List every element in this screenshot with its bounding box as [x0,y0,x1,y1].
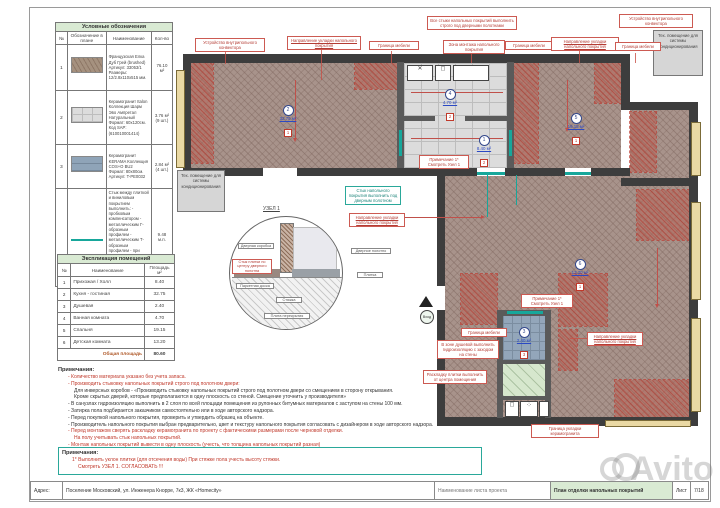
legend-col-no: № [56,32,68,45]
callout-tile-layout: Раскладку плитки выполнить от центра пом… [423,370,487,384]
stove-icon: ⁘ [520,401,538,417]
notes2-block: Примечания: 1* Выполнить уклон плитки (д… [58,447,482,475]
wall-segment [503,396,545,400]
wall-segment [437,168,477,176]
explication-col-no: № [58,264,71,277]
lay-direction-line [657,248,658,304]
callout-seams-under-doors: Все стыки напольных покрытий выполнить с… [427,16,517,30]
callout-convector: Устройство внутрипольного конвектора [195,38,265,52]
tile-layer [292,269,340,277]
legend-col-symbol: Обозначение в плане [67,32,106,45]
tech-room-right: Тех. помещение для системы кондициониров… [653,30,703,76]
explication-total-label: Общая площадь [58,349,145,361]
floor-seam-line [509,130,512,156]
wall-segment [297,168,437,176]
explication-row: 1Прихожая / Холл8.40 [58,277,175,289]
legend-title: Условные обозначения [56,23,173,32]
window [691,202,701,300]
kitchen-sink-icon: ◻ [505,401,519,417]
appliance-icon [539,401,549,417]
room-badge-hall: 1 8.40 м² 2 [471,128,497,169]
tech-room-left: Тех. помещение для системы кондициониров… [177,170,225,212]
wall-segment [465,116,507,121]
notes2-title: Примечания: [62,450,478,456]
callout-lay-direction: Направление укладки напольного покрытия [349,213,405,227]
callout-leader [570,338,587,339]
furniture-zone [514,63,538,163]
detail-circle-uzel1: Дверная коробка Стык плитки по центру дв… [229,216,343,330]
floor-seam-line [399,130,402,156]
callout-furniture-border: Граница мебели [505,41,553,50]
wall-segment [437,176,445,286]
door-leaf-section [293,227,337,271]
seam-leader-line [487,175,488,217]
finish-ref: 1 [572,137,580,145]
explication-total-row: Общая площадь 80.60 [58,349,175,361]
legend-row-tile: 2 Керамогранит Italon Коллекция Шарм Эво… [56,91,173,145]
note-line: На полу учитывать стык напольных покрыти… [58,435,478,442]
wall-segment [404,116,435,121]
callout-lay-direction: Направление укладки напольного покрытия [587,332,643,346]
washing-machine-icon: ✕ [407,65,433,81]
window [176,70,185,168]
avito-logo-icon [600,453,634,487]
room-area: 8.40 м² [471,146,497,151]
window [691,318,701,412]
room-number: 1 [479,135,490,146]
finish-ref: 2 [446,113,454,121]
notes2-line2: Смотреть УЗЕЛ 1. СОГЛАСОВАТЬ !!! [62,464,478,471]
callout-lay-direction: Направление укладки напольного покрытия [551,37,619,51]
room-area: 19.15 м² [563,124,589,129]
legend-col-name: Наименование [106,32,151,45]
explication-row: 5Спальня19.15 [58,325,175,337]
lay-direction-arrow [481,215,485,219]
floor-seam-line [507,311,543,314]
legend-row-blue-tile: 3 Керамогранит KERAMA Коллекция COS+O BU… [56,145,173,189]
furniture-zone [630,112,656,172]
wall-segment [621,178,698,186]
detail-label-joint: Стык плитки по центру дверного полотна [232,259,272,274]
furniture-zone [637,190,689,240]
detail-label-door-leaf: Дверное полотно [351,248,391,254]
room-badge-kids-room: 6 13.20 м² 1 [567,252,593,293]
callout-mount-zone: Зона монтажа напольного покрытия [443,40,505,54]
wall-segment [437,310,445,420]
lay-direction-arrow [655,304,659,308]
address-label: Адрес: [31,482,63,499]
watermark-text: Avito [630,450,714,489]
seam-leader-line [516,175,517,205]
address-value: Поселение Московский, ул. Инженера Кнорр… [63,482,435,499]
detail-label-door-frame: Дверная коробка [238,243,274,249]
legend-col-qty: Кол-во [151,32,172,45]
door-frame-section [280,223,294,273]
explication-row: 2Кухня - гостиная32.75 [58,289,175,301]
room-area: 2.40 м² [511,338,537,343]
finish-ref: 1 [284,129,292,137]
room-number: 2 [283,105,294,116]
room-number: 6 [575,259,586,270]
legend-row-wood: 1 Французская Елка Дуб Грей (brushed) Ар… [56,45,173,91]
tile-swatch [71,107,103,123]
callout-leader [321,46,322,80]
callout-leader [391,51,392,63]
callout-leader [635,53,636,63]
entry-label: Вход [420,310,434,324]
furniture-zone [191,63,213,163]
detail-label-slab: Плита перекрытия [264,313,310,319]
wood-swatch [71,57,103,73]
room-number: 4 [445,89,456,100]
explication-table: Экспликация помещений № Наименование Пло… [57,254,175,361]
callout-seam-under-door: Стык напольного покрытия выполнить под д… [345,186,401,205]
furniture-zone [559,330,577,370]
explication-row: 6Детская комната13.20 [58,337,175,349]
callout-convector: Устройство внутрипольного конвектора [619,14,693,28]
room-area: 4.70 м² [437,100,463,105]
floor-seam-line [477,172,505,175]
callout-lay-direction: Направление укладки напольного покрытия [287,36,361,50]
room-area: 13.20 м² [567,270,593,275]
explication-col-area: Площадь м² [144,264,174,277]
legend-table: Условные обозначения № Обозначение в пла… [55,22,173,287]
explication-total-value: 80.60 [144,349,174,361]
callout-note1: Примечание 1* Смотреть Узел 1 [521,294,573,308]
wall-segment [505,168,565,176]
wall-segment [183,54,629,63]
wall-segment [591,168,630,176]
detail-title: УЗЕЛ 1 [263,206,280,212]
floor-plan: ✕ ◻ ◻ ⁘ Тех. помещение для системы конди… [175,10,712,436]
callout-furniture-border: Граница мебели [369,41,419,50]
floor-shower-tray [503,364,545,396]
blue-tile-swatch [71,156,103,172]
detail-label-screed: Стяжка [276,297,302,303]
wall-segment [621,102,698,110]
seam-line-swatch [71,239,103,241]
furniture-zone [595,63,621,103]
avito-watermark: Avito [600,450,714,489]
callout-ceramic-border: Граница укладки керамогранита [531,424,599,438]
tech-room-label: Тех. помещение для системы кондициониров… [658,33,698,49]
room-badge-shower: 3 2.40 м² 3 [511,320,537,361]
furniture-zone [461,274,497,324]
callout-furniture-border: Граница мебели [461,328,507,337]
callout-note1: Примечание 1* Смотреть Узел 1 [419,155,469,169]
entry-arrow-icon [419,296,433,307]
room-area: 32.75 м² [275,116,301,121]
finish-ref: 1 [576,283,584,291]
explication-title: Экспликация помещений [58,255,175,264]
finish-ref: 3 [520,351,528,359]
explication-row: 4Ванная комната4.70 [58,313,175,325]
furniture-zone [355,63,397,89]
detail-label-parquet: Паркетная доска [236,283,274,289]
room-badge-bedroom: 5 19.15 м² 1 [563,106,589,147]
room-number: 5 [571,113,582,124]
furniture-zone [615,380,689,417]
notes2-line1: 1* Выполнить уклон плитки (для отсечения… [62,457,478,464]
floor-seam-line [565,172,591,175]
bathtub-icon [453,65,489,81]
explication-row: 3Душевая2.40 [58,301,175,313]
sink-icon: ◻ [435,65,451,81]
room-badge-kitchen-living: 2 32.75 м² 1 [275,98,301,139]
drawing-page: Условные обозначения № Обозначение в пла… [0,0,720,508]
callout-waterproofing: В зоне душевой выполнить гидроизоляцию с… [437,340,499,359]
sheet-name-label: Наименование листа проекта [435,482,551,499]
lay-direction-line [401,217,481,218]
room-number: 3 [519,327,530,338]
room-badge-bathroom: 4 4.70 м² 2 [437,82,463,123]
finish-ref: 2 [480,159,488,167]
explication-col-name: Наименование [71,264,145,277]
window [605,420,691,427]
window [691,122,701,176]
detail-label-tile: Плитка [357,272,383,278]
callout-furniture-border: Граница мебели [615,42,661,51]
tech-room-label: Тех. помещение для системы кондициониров… [181,173,221,189]
